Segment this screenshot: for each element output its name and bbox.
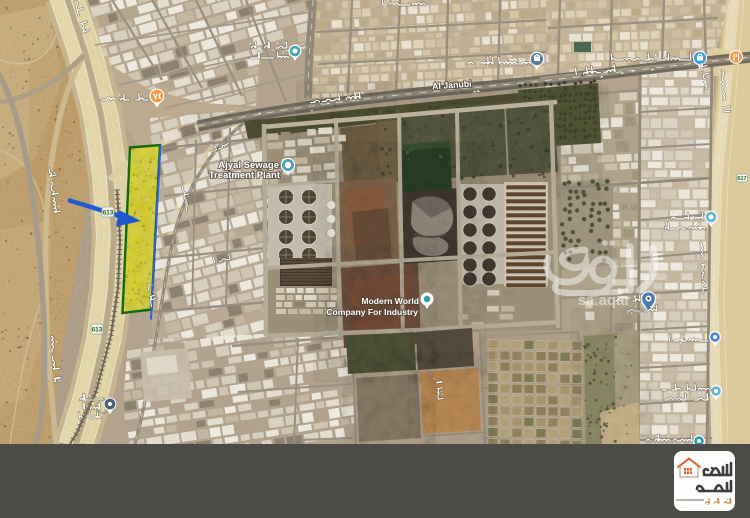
svg-text:Modern World: Modern World	[361, 296, 419, 306]
svg-text:613: 613	[92, 326, 103, 333]
svg-text:sa.aqar: sa.aqar	[578, 292, 631, 309]
svg-text:Treatment Plant: Treatment Plant	[209, 170, 281, 181]
svg-text:617: 617	[737, 176, 746, 182]
svg-text:Company For Industry: Company For Industry	[326, 307, 418, 317]
svg-text:613: 613	[103, 209, 114, 216]
